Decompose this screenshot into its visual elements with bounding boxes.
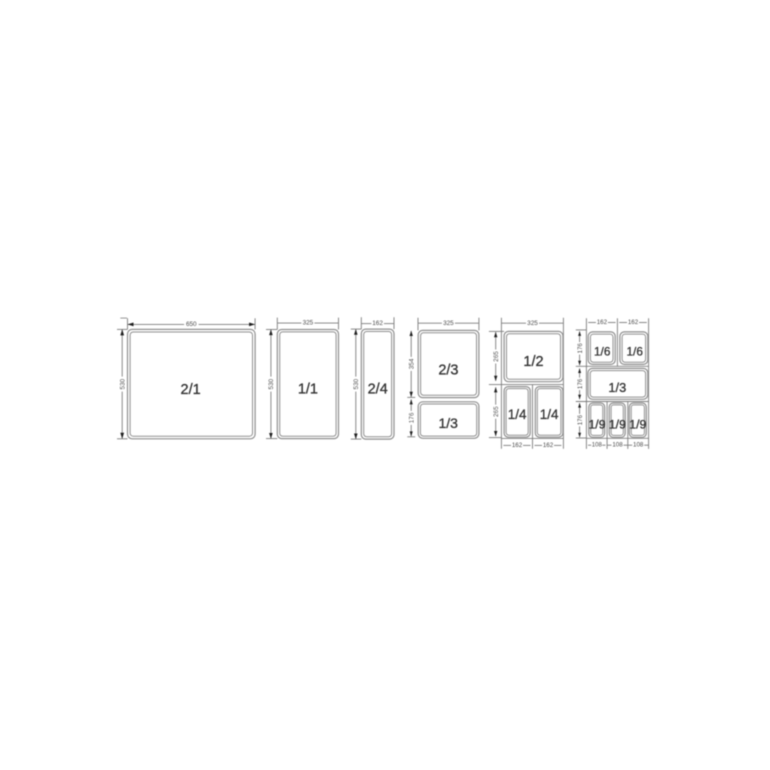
svg-text:265: 265 (493, 351, 500, 362)
svg-text:162: 162 (543, 442, 554, 449)
svg-text:1/9: 1/9 (609, 417, 626, 431)
svg-text:1/6: 1/6 (594, 344, 611, 358)
svg-text:1/1: 1/1 (298, 382, 318, 398)
svg-text:650: 650 (186, 321, 197, 328)
svg-text:2/1: 2/1 (181, 382, 201, 398)
svg-text:325: 325 (303, 320, 314, 327)
svg-text:1/4: 1/4 (508, 407, 527, 422)
svg-text:325: 325 (443, 320, 454, 327)
svg-text:1/9: 1/9 (588, 417, 605, 431)
svg-text:1/4: 1/4 (540, 407, 559, 422)
svg-text:108: 108 (633, 442, 644, 449)
svg-text:2/3: 2/3 (438, 363, 458, 379)
svg-text:108: 108 (592, 443, 603, 449)
svg-text:176: 176 (577, 378, 584, 389)
svg-text:162: 162 (372, 320, 383, 327)
svg-text:2/4: 2/4 (368, 382, 388, 398)
svg-text:1/3: 1/3 (608, 380, 626, 395)
svg-text:162: 162 (512, 442, 523, 449)
svg-text:530: 530 (268, 378, 275, 389)
svg-text:530: 530 (353, 378, 360, 389)
svg-text:325: 325 (527, 320, 538, 327)
svg-text:530: 530 (120, 378, 127, 389)
svg-text:176: 176 (577, 414, 584, 425)
svg-text:176: 176 (409, 412, 416, 423)
svg-text:354: 354 (409, 358, 416, 369)
svg-text:176: 176 (577, 343, 584, 354)
svg-text:1/3: 1/3 (438, 415, 458, 431)
svg-text:1/2: 1/2 (523, 354, 543, 370)
svg-text:162: 162 (628, 319, 639, 326)
svg-text:1/9: 1/9 (629, 417, 646, 431)
svg-text:162: 162 (597, 319, 608, 326)
svg-text:108: 108 (612, 442, 623, 449)
svg-text:265: 265 (493, 406, 500, 417)
svg-text:1/6: 1/6 (626, 344, 643, 358)
